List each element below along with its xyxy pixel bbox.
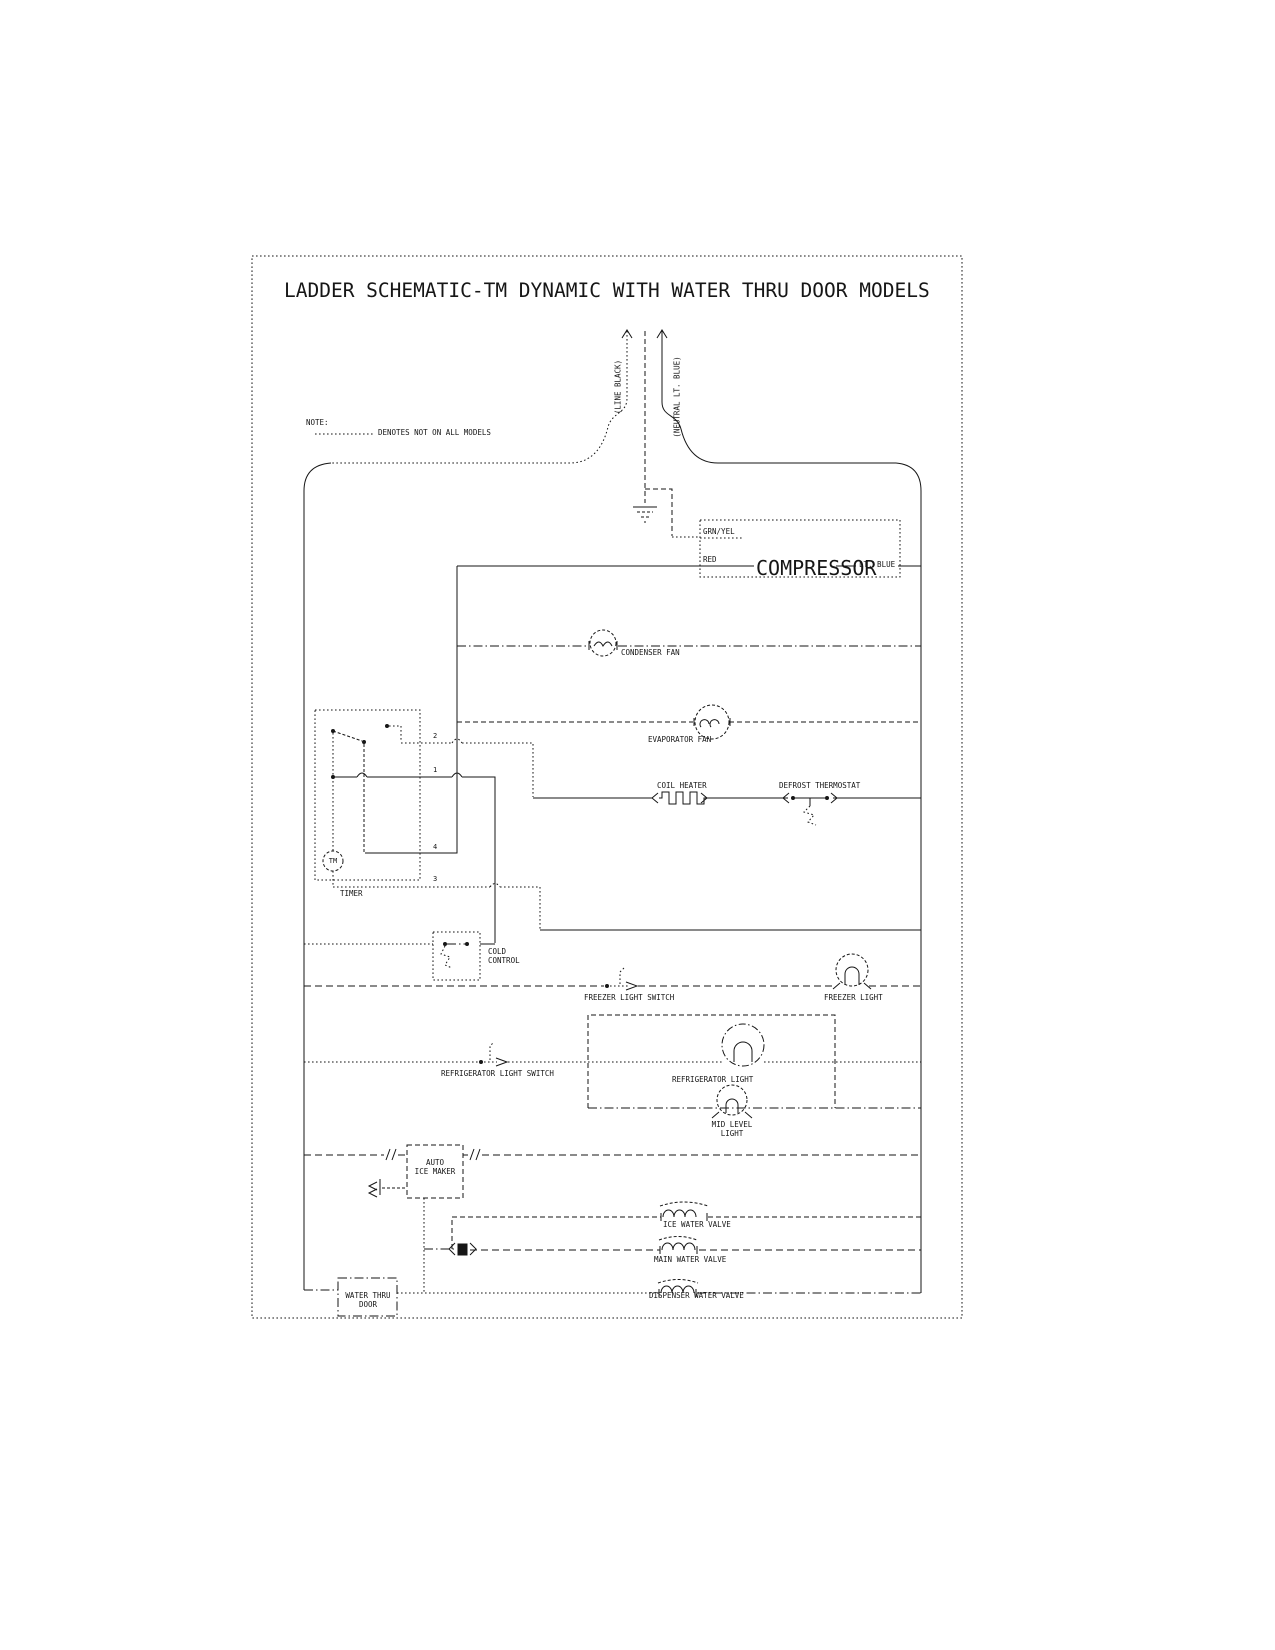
defrost-heater-symbol [533,792,788,804]
note-legend: DENOTES NOT ON ALL MODELS [378,428,491,437]
note-heading: NOTE: [306,418,329,427]
freezer-light-label: FREEZER LIGHT [824,993,883,1002]
condenser-fan-symbol [457,630,921,656]
power-supply-wires [304,330,921,1293]
auto-ice-maker-label: AUTO ICE MAKER [415,1158,456,1176]
ground-symbol [633,489,700,537]
ice-maker-circuit [304,1145,921,1292]
cold-control-label: COLD CONTROL [488,947,520,965]
evaporator-fan-label: EVAPORATOR FAN [648,735,711,744]
timer-label: TIMER [340,889,363,898]
condenser-fan-label: CONDENSER FAN [621,648,680,657]
red-wire-label: RED [703,555,717,564]
line-black-label: (LINE BLACK) [614,360,623,414]
coil-heater-label: COIL HEATER [657,781,707,790]
lt-blue-wire-label: LT. BLUE [859,560,895,569]
timer-symbol [315,710,921,943]
refrigerator-light-circuit [304,1024,921,1066]
refrigerator-light-switch-label: REFRIGERATOR LIGHT SWITCH [441,1069,554,1078]
water-thru-door-label: WATER THRU DOOR [345,1291,390,1309]
schematic-page: LADDER SCHEMATIC-TM DYNAMIC WITH WATER T… [0,0,1275,1650]
evaporator-fan-symbol [457,705,921,739]
ice-water-valve-label: ICE WATER VALVE [663,1220,731,1229]
neutral-label: (NEUTRAL LT. BLUE) [673,356,682,437]
timer-terminal-3: 3 [433,875,437,883]
timer-terminal-1: 1 [433,766,437,774]
main-water-valve-label: MAIN WATER VALVE [654,1255,726,1264]
cold-control-symbol [304,932,495,980]
dispenser-water-valve-label: DISPENSER WATER VALVE [649,1291,744,1300]
refrigerator-light-label: REFRIGERATOR LIGHT [672,1075,753,1084]
defrost-thermostat-label: DEFROST THERMOSTAT [779,781,860,790]
freezer-light-circuit [304,954,921,990]
light-group-box [588,1015,921,1118]
timer-terminal-2: 2 [433,732,437,740]
defrost-thermostat-symbol [783,793,921,825]
timer-terminal-4: 4 [433,843,437,851]
wiring-diagram [0,0,1275,1650]
page-title: LADDER SCHEMATIC-TM DYNAMIC WITH WATER T… [284,279,930,302]
mid-level-light-label: MID LEVEL LIGHT [712,1120,753,1138]
grn-yel-wire-label: GRN/YEL [703,527,735,536]
timer-motor-label: TM [329,857,337,865]
freezer-light-switch-label: FREEZER LIGHT SWITCH [584,993,674,1002]
water-valve-circuit [304,1202,921,1297]
